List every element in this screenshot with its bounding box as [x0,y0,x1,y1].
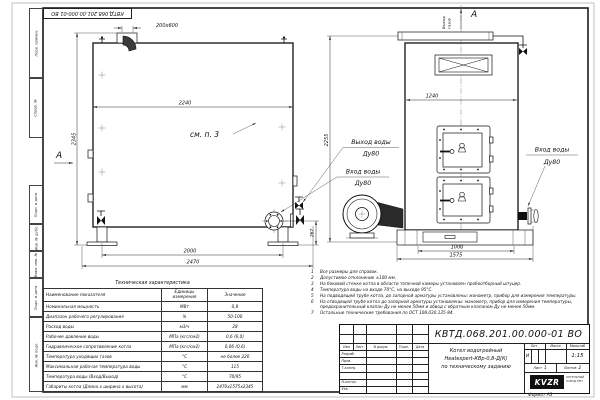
table-row: Температура воды (Вход/Выход)°С70/95 [44,371,263,381]
hdr-izm: Изм [340,343,353,350]
water-inlet-right-dn: Ду80 [543,159,560,166]
dim-base-span: 2000 [184,249,197,255]
notes-list: 1Все размеры для справок. 2Допустимое от… [311,269,585,316]
side-nozzle [88,150,93,158]
note-item: 2Допустимое отклонение ±100 мм. [311,275,585,280]
boiler-side-view: 200х600 2240 2345 2000 2470 267 см. п. 3… [54,23,319,269]
row-nkontr: Н.контр. [340,379,368,386]
tech-table-title: Техническая характеристика [43,281,262,286]
scale-value: 1:15 [566,349,589,363]
air-vent-tap [493,36,527,55]
water-inlet-right-flange [518,208,538,224]
blower-fan [343,195,403,238]
dim-front-base: 1575 [450,253,463,259]
row-utv: Утв. [340,386,368,393]
frame-col-vzam-inv: Взам. инв. № [29,251,43,278]
note-item: 1Все размеры для справок. [311,269,585,274]
dim-side-height: 2345 [72,133,78,146]
row-tkontr: Т.контр. [340,364,368,371]
flue-collar [398,32,493,40]
view-arrow-letter: А [55,151,62,161]
table-row: Рабочее давление водыМПа (кгс/см2)0,6 (6… [44,331,263,341]
gas-outlet-label: Выход [441,16,446,29]
table-row: Гидравлическое сопротивление котлаМПа (к… [44,341,263,351]
doc-number-stamp: КВТД.068.201.00.000-01 ВО [43,8,132,19]
note-item: 7Остальные технические требования по ОСТ… [311,310,585,315]
table-row: Максимальная рабочая температура воды°С1… [44,361,263,371]
upper-furnace-door [437,126,493,173]
table-row: Номинальная мощностьМВт0,8 [44,301,263,311]
title-block: КВТД.068.201.00.000-01 ВО Изм Лист N док… [339,324,590,394]
note-item: 3На боковой стенке котла в области топоч… [311,281,585,286]
rear-bracket [293,176,297,186]
note-item: 4Температура воды на входе 70°С, на выхо… [311,287,585,292]
lower-furnace-door [437,177,493,223]
row-razrab: Разраб. [340,350,368,357]
table-row: Температура уходящих газов°Сне более 220 [44,351,263,361]
support-legs [87,227,298,246]
frame-col-inv-podl: Инв. № подл. [29,317,43,392]
table-row: Расход водым3/ч28 [44,321,263,331]
frame-col-podp-data1: Подп. и дата [29,185,43,224]
pipe-labels: Выход воды Ду80 Вход воды Ду80 Вход воды… [281,139,578,212]
frame-col-inv-dubl: Инв. № дубл. [29,224,43,251]
product-name: Котел водогрейный Heatexpert-КВр-0,8-Д(К… [428,343,524,398]
sheets-cell: Листов2 [556,363,589,372]
table-row: Диапазон рабочего регулирования%50-100 [44,311,263,321]
hdr-list: Лист [353,343,366,350]
side-nozzle [88,194,93,202]
explosion-vent [435,55,492,75]
sheet-cell: Лист1 [524,363,556,372]
note-item: 5На подводящей трубе котла, до запорной … [311,293,585,298]
dim-front-base-inner: 1000 [451,245,464,251]
dim-side-width: 2240 [179,101,192,107]
water-outlet-dn: Ду80 [362,151,379,158]
boiler-front-view: Выход газов А 1240 [324,5,538,262]
frame-col-sprav: Справ. № [29,78,43,138]
hdr-data: Дата [412,343,428,350]
water-inlet-right-label: Вход воды [535,147,570,154]
row-prov: Пров. [340,357,368,364]
tech-col-units: Единицы измерения [162,288,208,301]
lit-value: И [524,349,531,363]
row-blank [340,372,368,379]
doc-number: КВТД.068.201.00.000-01 ВО [428,325,589,343]
water-outlet-label: Выход воды [351,139,391,146]
base-frame [397,230,533,245]
tech-col-name: Наименование показателя [44,288,162,301]
dim-front-height: 2255 [324,134,330,147]
reference-marks [99,72,286,187]
hdr-podp: Подп. [396,343,412,350]
water-inlet-label: Вход воды [346,169,381,176]
table-row: Габариты котла (Длина х ширина х высота)… [44,381,263,391]
drawing-sheet: 200х600 2240 2345 2000 2470 267 см. п. 3… [0,0,600,400]
mass-label: Масса [545,343,566,349]
frame-col-perv-primen: Перв. примен. [29,8,43,78]
water-inlet-dn: Ду80 [354,180,371,187]
format-label: Формат А3 [528,393,552,398]
dim-front-width: 1240 [426,94,439,100]
tech-characteristics: Техническая характеристика Наименование … [43,281,262,392]
hdr-dokum: N докум. [366,343,396,350]
dim-length: 2470 [187,260,200,266]
dim-pipe-height: 267 [310,229,316,238]
kvzr-logo-subtext: КОТЕЛЬНЫЙ ЗАВОД РЭП [566,376,589,384]
see-note-callout: см. п. 3 [190,130,219,139]
note-item: 6На отводящей трубе котла до запорной ар… [311,299,585,310]
dim-flue-stub: 200х600 [156,23,178,29]
tech-col-value: Значение [208,288,263,301]
frame-col-podp-data2: Подп. и дата [29,278,43,317]
kvzr-logo: KVZR [530,375,564,389]
view-letter-front: А [470,10,477,20]
drain-valve [97,211,105,225]
gas-outlet-label2: газов [447,17,452,29]
tech-table: Наименование показателя Единицы измерени… [43,288,263,392]
